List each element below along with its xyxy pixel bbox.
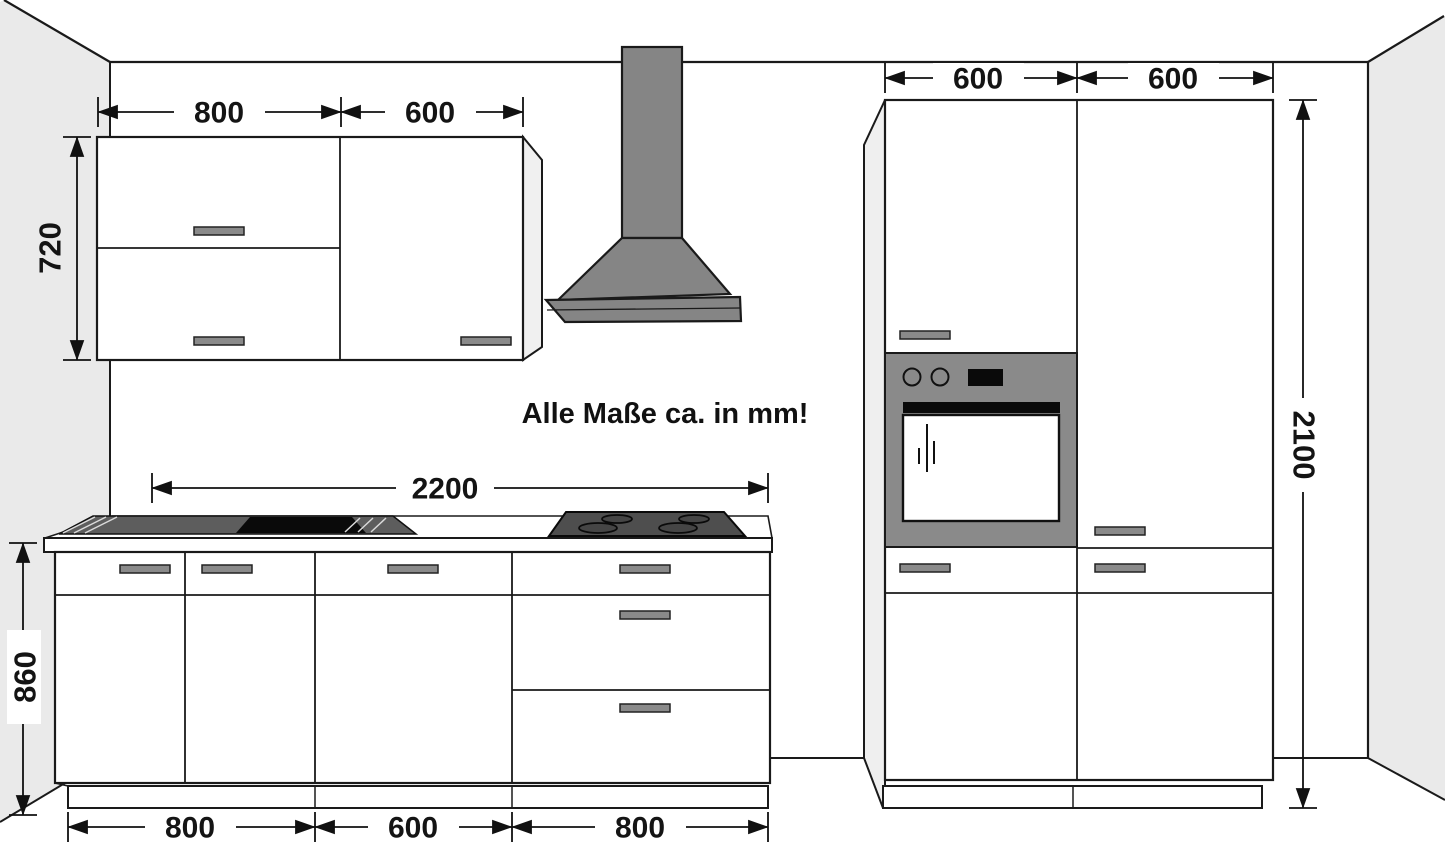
dim-arrow [343,106,360,118]
hood-canopy [558,238,730,300]
dim-tall-cabinet-height: 2100 [1286,100,1322,808]
dim-label-720: 720 [33,222,68,274]
cabinet-handle [620,565,670,573]
dim-arrow [1058,72,1075,84]
measurement-note: Alle Maße ca. in mm! [522,398,809,430]
cabinet-handle [461,337,511,345]
cabinet-handle [620,611,670,619]
sink-drainer [59,516,416,534]
dim-label-2100: 2100 [1287,411,1322,480]
cabinet-handle [900,564,950,572]
cooktop-surface [549,512,745,536]
dim-arrow [322,106,339,118]
burner-front-right [659,523,697,533]
dim-arrow [504,106,521,118]
dim-arrow [317,821,334,833]
dim-label-860: 860 [8,651,43,703]
cabinet-handle [388,565,438,573]
range-hood [546,47,741,322]
dim-tall-cabinet-widths: 600 600 [885,63,1273,96]
dim-label-wall-800: 800 [194,97,244,130]
dim-worktop-run: 2200 [152,473,768,506]
burner-front-left [579,523,617,533]
dim-label-2200: 2200 [412,473,479,506]
dim-arrow [514,821,531,833]
tall-cabinets [864,100,1273,808]
dim-arrow [296,821,313,833]
oven-knob [932,369,949,386]
dim-arrow [1297,102,1309,119]
worktop-front-edge [44,538,772,552]
dim-label-base-600: 600 [388,812,438,845]
burner-back-right [679,515,709,523]
burner-back-left [602,515,632,523]
dim-label-base-800-left: 800 [165,812,215,845]
cabinet-handle [194,337,244,345]
oven-knob [904,369,921,386]
cabinet-handle [120,565,170,573]
dim-arrow [154,482,171,494]
dim-label-wall-600: 600 [405,97,455,130]
hood-duct [622,47,682,238]
dim-label-tall-600-right: 600 [1148,63,1198,96]
cabinet-handle [194,227,244,235]
cabinet-handle [900,331,950,339]
built-in-oven [885,353,1077,547]
dim-label-base-800-right: 800 [615,812,665,845]
base-cabinets [55,552,770,808]
cabinet-handle [1095,564,1145,572]
dim-label-tall-600-left: 600 [953,63,1003,96]
cooktop [549,512,745,536]
cabinet-handle [202,565,252,573]
diagram-canvas: 800 600 720 600 600 2100 [0,0,1445,847]
dim-arrow [749,821,766,833]
base-plinth [68,786,768,808]
base-front [55,552,770,783]
wall-cabinet-side-panel [523,137,542,360]
dim-arrow [749,482,766,494]
right-wall [1368,17,1445,800]
dim-wall-cabinet-widths: 800 600 [98,97,523,130]
dim-arrow [1297,789,1309,806]
oven-door-handle [903,402,1060,413]
dim-base-widths: 800 600 800 [68,812,768,845]
worktop [44,512,772,552]
cabinet-handle [1095,527,1145,535]
dim-arrow [1079,72,1096,84]
oven-display [968,369,1003,386]
kitchen-dimension-diagram: 800 600 720 600 600 2100 [0,0,1445,847]
tall-cabinet-side-panel [864,100,885,808]
dim-arrow [1254,72,1271,84]
dim-arrow [887,72,904,84]
dim-arrow [493,821,510,833]
cabinet-handle [620,704,670,712]
wall-cabinets [97,137,542,360]
